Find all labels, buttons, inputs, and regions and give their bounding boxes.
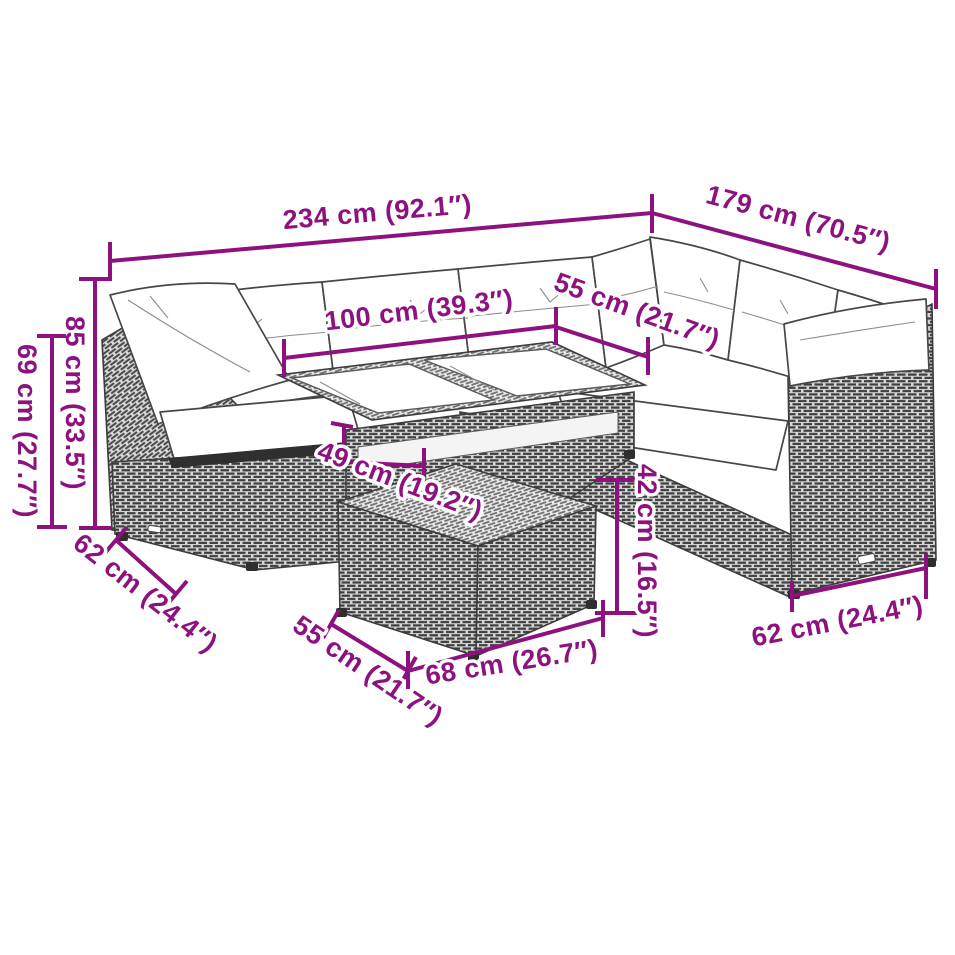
table-foot: [624, 450, 635, 459]
dimension-label: 85 cm (33.5″): [60, 316, 90, 490]
sofa-foot: [246, 562, 258, 571]
dimension-arm-height: 69 cm (27.7″): [12, 336, 67, 527]
footstool-foot: [586, 600, 597, 609]
dimension-label: 179 cm (70.5″): [703, 179, 894, 257]
dimension-label: 69 cm (27.7″): [12, 344, 42, 518]
diagram-canvas: 234 cm (92.1″) 179 cm (70.5″) 100 cm (39…: [0, 0, 955, 955]
logo-plate: [148, 525, 162, 533]
dimension-back-height: 85 cm (33.5″): [60, 279, 112, 528]
dimension-label: 42 cm (16.5″): [632, 464, 662, 638]
dimension-label: 62 cm (24.4″): [749, 590, 926, 653]
product-dimension-diagram: 234 cm (92.1″) 179 cm (70.5″) 100 cm (39…: [0, 0, 955, 955]
dimension-label: 234 cm (92.1″): [281, 189, 472, 235]
